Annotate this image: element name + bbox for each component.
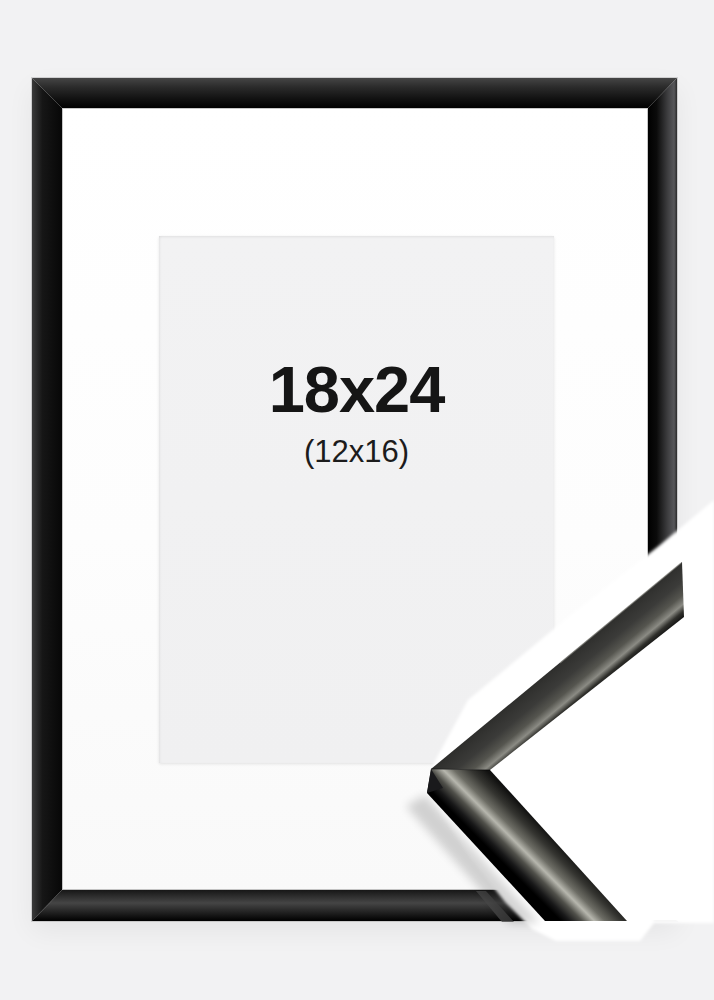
- frame-product-photo: 18x24 (12x16): [0, 0, 714, 1000]
- picture-frame: 18x24 (12x16): [32, 78, 677, 921]
- frame-edge-top: [32, 78, 677, 108]
- frame-edge-left: [32, 78, 62, 921]
- size-label: 18x24: [269, 357, 445, 422]
- mat-board: 18x24 (12x16): [62, 108, 648, 890]
- matted-size-label: (12x16): [304, 436, 409, 467]
- mat-opening: 18x24 (12x16): [159, 236, 554, 763]
- frame-edge-bottom: [32, 890, 677, 921]
- frame-edge-right: [648, 78, 677, 921]
